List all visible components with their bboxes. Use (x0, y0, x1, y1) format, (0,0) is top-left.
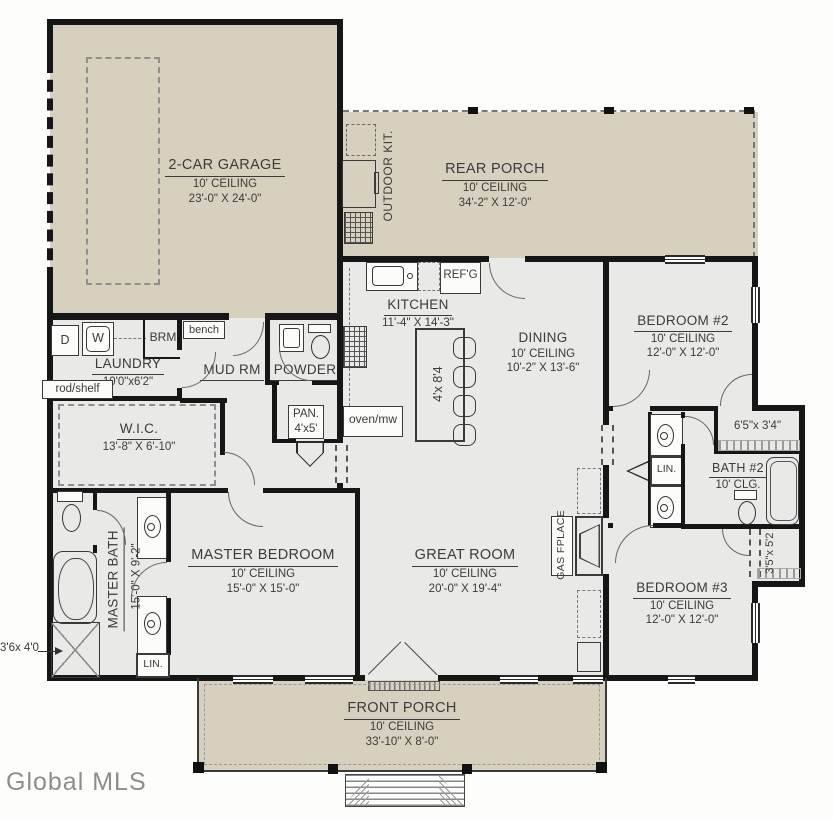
shower-dims-label: 3'6x 4'0 (0, 641, 44, 656)
master-linen-label: LIN. (136, 658, 170, 672)
powder-sink-basin (283, 328, 300, 348)
room-name: GREAT ROOM (375, 546, 555, 567)
wall (93, 545, 97, 553)
window (668, 675, 695, 684)
bath2-tub-basin (770, 461, 797, 521)
rear-porch-edge-top (343, 110, 755, 112)
rear-porch-edge-right (753, 112, 755, 258)
room-name: DINING (483, 329, 603, 347)
room-dims: 20'-0" X 19'-4" (375, 582, 555, 597)
room-name: PAN. (288, 407, 324, 422)
front-porch-border-bottom (197, 770, 607, 772)
outdoor-grill (346, 124, 376, 156)
rear-porch-label: REAR PORCH 10' CEILING 34'-2" X 12'-0" (385, 160, 605, 211)
room-ceiling: 10' CEILING (385, 181, 605, 196)
room-dims: 33'-10" X 8'-0" (302, 735, 502, 750)
wall (273, 675, 305, 681)
window (305, 675, 353, 684)
room-dims: 13'-8" X 6'-10" (69, 440, 209, 455)
bath2-toilet-bowl (738, 501, 756, 525)
wall (752, 581, 805, 587)
room-dims: 10'-2" X 13'-6" (483, 361, 603, 376)
wall (272, 439, 296, 443)
wall (263, 488, 360, 493)
island-dims-label: 4'x 8'4 (430, 339, 446, 429)
porch-post (328, 764, 338, 774)
room-name: BEDROOM #2 (608, 312, 758, 332)
bedroom2-label: BEDROOM #2 10' CEILING 12'-0" X 12'-0" (608, 312, 758, 361)
room-ceiling: 10' CEILING (608, 332, 758, 347)
window (233, 675, 273, 684)
porch-post (744, 107, 754, 114)
room-ceiling: 10' CEILING (302, 720, 502, 735)
closet-bedroom2-dims: 6'5"x 3'4" (710, 419, 805, 434)
room-name: W.I.C. (69, 420, 209, 440)
master-toilet-bowl (62, 504, 81, 532)
kitchen-label: KITCHEN 11'-4" X 14'-3" (343, 296, 493, 330)
window (500, 675, 538, 684)
wall (650, 406, 714, 411)
wall (47, 313, 229, 320)
shower-dims-arrowhead (55, 647, 63, 655)
wall (653, 523, 685, 528)
wic-label: W.I.C. 13'-8" X 6'-10" (69, 420, 209, 454)
kitchen-sink (372, 266, 404, 286)
island-stool (453, 424, 476, 446)
wall (265, 313, 343, 320)
room-name: LAUNDRY (63, 355, 193, 375)
room-name: MASTER BEDROOM (168, 546, 358, 567)
island-stool (453, 366, 476, 388)
master-tub-basin (58, 558, 94, 620)
room-name: BEDROOM #3 (607, 579, 757, 599)
island-stool (453, 395, 476, 417)
window (573, 675, 603, 684)
master-bedroom-label: MASTER BEDROOM 10' CEILING 15'-0" X 15'-… (168, 546, 358, 597)
gas-fireplace-label: GAS FPLACE (555, 510, 569, 580)
wall (272, 385, 277, 443)
wall (705, 256, 758, 262)
room-name: KITCHEN (343, 296, 493, 316)
vanity-sink (657, 496, 674, 519)
built-in-cabinet (577, 590, 601, 638)
wall (47, 19, 53, 61)
floor-plan: 2-CAR GARAGE 10' CEILING 23'-0" X 24'-0"… (0, 0, 834, 819)
front-porch-border-left (197, 678, 199, 772)
porch-post (193, 762, 204, 773)
wall (47, 19, 343, 25)
outdoor-counter (342, 160, 376, 208)
wall (438, 675, 500, 681)
pantry-label: PAN. 4'x5' (288, 407, 324, 437)
wall (93, 493, 97, 510)
vanity-sink (144, 612, 161, 635)
hall-linen-label: LIN. (650, 463, 683, 477)
room-ceiling: 10' CEILING (168, 567, 358, 582)
wall (752, 405, 805, 411)
room-dims: 4'x5' (288, 422, 324, 437)
wall (695, 675, 758, 681)
room-dims: 23'-0" X 24'-0" (115, 192, 335, 207)
island-stool (453, 337, 476, 359)
room-ceiling: 10' CEILING (115, 177, 335, 192)
room-name: 2-CAR GARAGE (115, 156, 335, 177)
powder-toilet-tank (308, 324, 331, 333)
room-ceiling: 10' CEILING (607, 599, 757, 614)
bench-label: bench (183, 323, 225, 337)
window (665, 255, 705, 264)
room-ceiling: 10' CEILING (375, 567, 555, 582)
room-dims: 34'-2" X 12'-0" (385, 196, 605, 211)
vanity-sink (144, 515, 161, 538)
dining-label: DINING 10' CEILING 10'-2" X 13'-6" (483, 329, 603, 376)
room-dims: 12'-0" X 12'-0" (608, 346, 758, 361)
watermark: Global MLS (6, 768, 147, 797)
outdoor-appliance (344, 212, 373, 244)
bath2-toilet-tank (734, 490, 757, 500)
wall (337, 319, 343, 443)
wall (538, 675, 573, 681)
shower-dims-arrow-line (38, 651, 56, 652)
master-toilet-tank (57, 491, 83, 502)
faucet-dot (407, 273, 413, 279)
closet-bedroom3-dims: 3'5"x 5'2 (763, 522, 777, 584)
wall (603, 675, 668, 681)
porch-post (604, 107, 614, 114)
wall (220, 403, 225, 455)
dryer-label: D (51, 332, 79, 348)
wall (608, 523, 613, 528)
built-in-cabinet (577, 468, 601, 514)
built-in-cabinet (577, 642, 601, 672)
front-porch-border-right (605, 678, 607, 772)
room-dims: 12'-0" X 12'-0" (607, 613, 757, 628)
vanity-sink (657, 424, 674, 447)
powder-toilet-bowl (311, 335, 330, 359)
bedroom3-label: BEDROOM #3 10' CEILING 12'-0" X 12'-0" (607, 579, 757, 628)
garage-label: 2-CAR GARAGE 10' CEILING 23'-0" X 24'-0" (115, 156, 335, 207)
porch-post (468, 107, 478, 114)
porch-post (462, 764, 472, 774)
closet-shelf (718, 440, 800, 451)
room-ceiling: 10' CEILING (483, 347, 603, 362)
rod-shelf-label: rod/shelf (42, 382, 113, 397)
oven-microwave-label: oven/mw (343, 412, 403, 428)
porch-post (596, 762, 607, 773)
great-room-label: GREAT ROOM 10' CEILING 20'-0" X 19'-4" (375, 546, 555, 597)
wall (608, 256, 665, 262)
room-name: REAR PORCH (385, 160, 605, 181)
wall (603, 465, 609, 518)
counter-line (114, 338, 146, 339)
wall (681, 444, 685, 528)
wall (525, 256, 608, 262)
outdoor-counter-knob (374, 172, 379, 194)
broom-closet-label: BRM (143, 330, 183, 346)
refrigerator-label: REF'G (440, 268, 481, 283)
cased-opening (335, 445, 348, 483)
room-name: FRONT PORCH (302, 699, 502, 720)
cased-opening (601, 425, 614, 465)
front-porch-label: FRONT PORCH 10' CEILING 33'-10" X 8'-0" (302, 699, 502, 750)
upper-cabinet-dashed (418, 262, 440, 291)
garage-door-wall (47, 61, 53, 279)
room-dims: 15'-0" X 15'-0" (168, 582, 358, 597)
washer-label: W (82, 330, 114, 346)
